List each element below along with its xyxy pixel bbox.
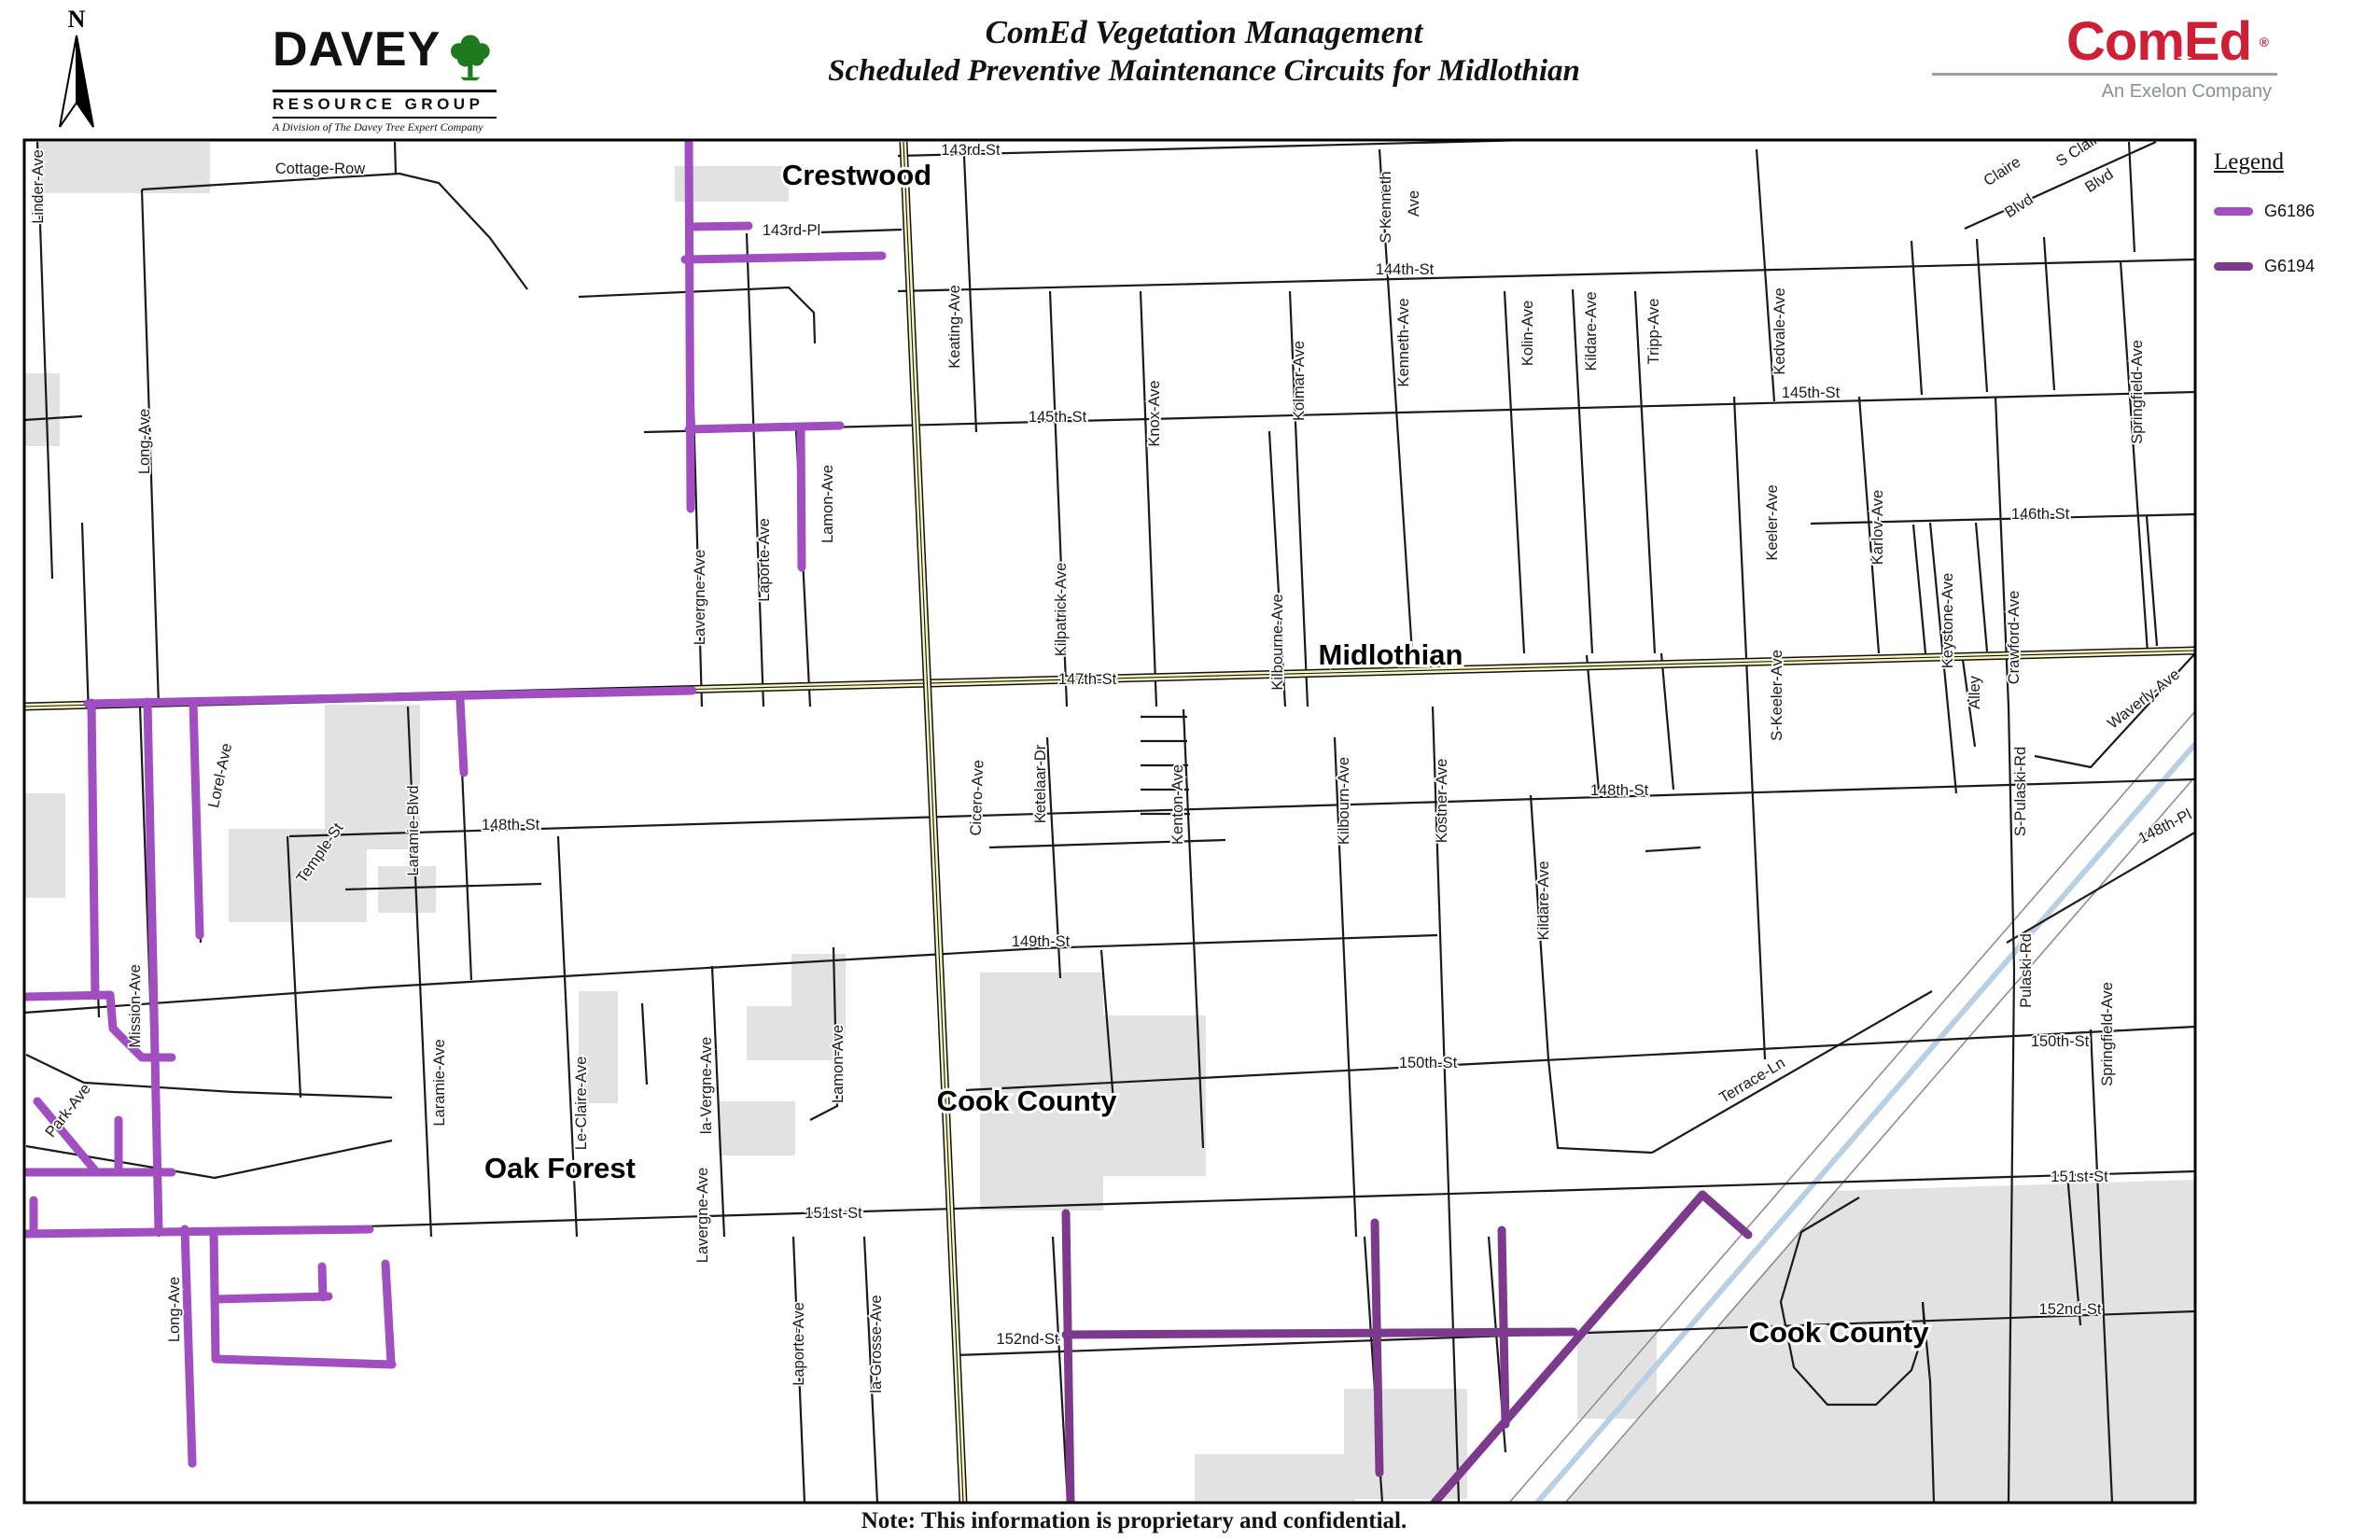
street-label: Kildare-Ave bbox=[1535, 861, 1552, 941]
built-area-layer bbox=[24, 142, 2195, 1503]
street-label: Tripp-Ave bbox=[1645, 299, 1662, 365]
street-label: 152nd-St bbox=[2039, 1301, 2102, 1318]
street-label: Keeler-Ave bbox=[1764, 484, 1781, 560]
street-149th-Pl bbox=[345, 884, 541, 889]
street-label: Kildare-Ave bbox=[1583, 292, 1600, 371]
street-143rd-stub bbox=[395, 142, 396, 175]
street-label: Kilpatrick-Ave bbox=[1053, 563, 1070, 657]
street-label: Cottage-Row bbox=[275, 161, 365, 177]
confidentiality-note: Note: This information is proprietary an… bbox=[0, 1508, 2268, 1534]
place-label: Oak Forest bbox=[484, 1152, 636, 1184]
street-Keating-Ave bbox=[964, 156, 976, 432]
street-label: la-Vergne-Ave bbox=[698, 1037, 715, 1134]
map-canvas: 143rd-StCottage-Row143rd-Pl144th-St145th… bbox=[0, 0, 2380, 1540]
street-label: Kolin-Ave bbox=[1519, 301, 1536, 366]
street-label: 148th-St bbox=[1590, 782, 1649, 799]
street-label: Knox-Ave bbox=[1146, 380, 1163, 446]
street-v-690 bbox=[642, 1003, 647, 1085]
street-label: 149th-St bbox=[1012, 933, 1071, 950]
street-label: Blvd bbox=[2082, 166, 2117, 197]
place-label: Cook County bbox=[1749, 1316, 1930, 1349]
street-Springfield-n bbox=[2121, 261, 2148, 653]
street-label: 143rd-St bbox=[941, 142, 1001, 159]
street-label: Laporte-Ave bbox=[791, 1302, 807, 1386]
street-label: Lavergne-Ave bbox=[692, 550, 708, 645]
street-label: 151st-St bbox=[805, 1205, 862, 1222]
street-label: Laramie-Blvd bbox=[405, 785, 422, 875]
street-label: Kenton-Ave bbox=[1169, 764, 1186, 845]
street-v-h bbox=[1661, 653, 1673, 790]
place-label: Midlothian bbox=[1319, 638, 1463, 671]
street-label: 143rd-Pl bbox=[763, 222, 820, 239]
street-label: Lorel-Ave bbox=[205, 742, 235, 810]
street-Laporte-n bbox=[747, 233, 763, 707]
street-label: S-Keeler-Ave bbox=[1769, 650, 1785, 741]
street-label: 152nd-St bbox=[997, 1331, 1059, 1348]
street-144th-St bbox=[898, 259, 2195, 291]
street-label: Lamon-Ave bbox=[819, 465, 836, 543]
street-label: Lavergne-Ave bbox=[694, 1168, 711, 1263]
street-label: Keystone-Ave bbox=[1939, 573, 1956, 668]
street-v-b bbox=[1977, 239, 1987, 392]
street-label: 150th-St bbox=[2031, 1033, 2090, 1050]
street-label: Springfield-Ave bbox=[2129, 340, 2146, 444]
street-v-e bbox=[1976, 523, 1987, 651]
street-label: Cicero-Ave bbox=[968, 760, 987, 836]
street-label: Kenneth-Ave bbox=[1395, 298, 1412, 386]
street-144th-w bbox=[579, 287, 815, 343]
street-label: 147th-St bbox=[1058, 671, 1117, 688]
street-label: S Claire bbox=[2053, 126, 2108, 170]
street-143rd-Pl bbox=[819, 230, 902, 232]
street-label: S Kenneth bbox=[1378, 171, 1394, 243]
street-label: 150th-St bbox=[1399, 1055, 1458, 1071]
street-label: Ketelaar-Dr bbox=[1032, 744, 1049, 823]
street-label: Blvd bbox=[2002, 191, 2037, 222]
street-label: 151st-St bbox=[2051, 1169, 2108, 1185]
street-Knox-Ave bbox=[1141, 291, 1156, 707]
street-v-a bbox=[1911, 241, 1922, 395]
street-label: Pulaski-Rd bbox=[2018, 933, 2035, 1008]
street-label: S-Pulaski-Rd bbox=[2012, 747, 2029, 836]
map-sheet: N DAVEY RESOURCE GROUP A Division of The… bbox=[0, 0, 2380, 1540]
street-v-g bbox=[1587, 655, 1599, 791]
street-label: 145th-St bbox=[1029, 409, 1087, 426]
street-v-d bbox=[1913, 525, 1925, 653]
street-label: Long-Ave bbox=[136, 409, 153, 474]
street-label: Long-Ave bbox=[166, 1277, 183, 1342]
map-layers: 143rd-StCottage-Row143rd-Pl144th-St145th… bbox=[24, 123, 2203, 1503]
street-149th-St bbox=[24, 935, 1437, 1013]
street-label: Kedvale-Ave bbox=[1771, 287, 1788, 374]
street-label: Lamon-Ave bbox=[830, 1025, 847, 1103]
street-label: Mission-Ave bbox=[127, 964, 144, 1048]
street-label: Alley bbox=[1967, 675, 1983, 709]
street-label: Kostner-Ave bbox=[1434, 759, 1450, 844]
street-v-f bbox=[2147, 516, 2157, 646]
street-label: Claire bbox=[1981, 154, 2023, 190]
street-label: Le-Claire-Ave bbox=[573, 1057, 590, 1151]
street-Terrace-w bbox=[1548, 1059, 1652, 1153]
street-label: Kolmar-Ave bbox=[1291, 341, 1308, 421]
street-label: 144th-St bbox=[1376, 261, 1435, 278]
street-label: 148th-St bbox=[482, 817, 540, 833]
street-label: Keating-Ave bbox=[946, 285, 963, 369]
street-label: Laramie-Ave bbox=[431, 1039, 448, 1126]
street-145th-St bbox=[644, 392, 2195, 432]
street-148th-St bbox=[289, 779, 2195, 836]
street-v-2280 bbox=[2129, 142, 2135, 252]
circuit-g6186 bbox=[24, 142, 882, 1463]
street-label: Crawford-Ave bbox=[2006, 591, 2023, 685]
street-label: la-Grosse-Ave bbox=[868, 1295, 885, 1393]
street-label: Karlov-Ave bbox=[1869, 490, 1886, 565]
street-h-910e bbox=[1645, 847, 1701, 851]
place-label: Cook County bbox=[937, 1085, 1118, 1117]
street-label: Laporte-Ave bbox=[756, 518, 773, 602]
street-label: Ave bbox=[1406, 190, 1422, 217]
street-label: Linder-Ave bbox=[30, 149, 47, 224]
street-label: Waverly-Ave bbox=[2105, 665, 2183, 732]
street-label: Kilbourn-Ave bbox=[1336, 757, 1352, 845]
street-Keeler-Ave bbox=[1734, 397, 1765, 1059]
street-v-c bbox=[2044, 237, 2054, 390]
street-label: Kilbourne-Ave bbox=[1269, 594, 1286, 690]
street-label: 145th-St bbox=[1782, 385, 1841, 401]
street-label: 146th-St bbox=[2011, 506, 2070, 523]
place-label: Crestwood bbox=[782, 159, 931, 191]
street-label: Springfield-Ave bbox=[2099, 982, 2116, 1086]
